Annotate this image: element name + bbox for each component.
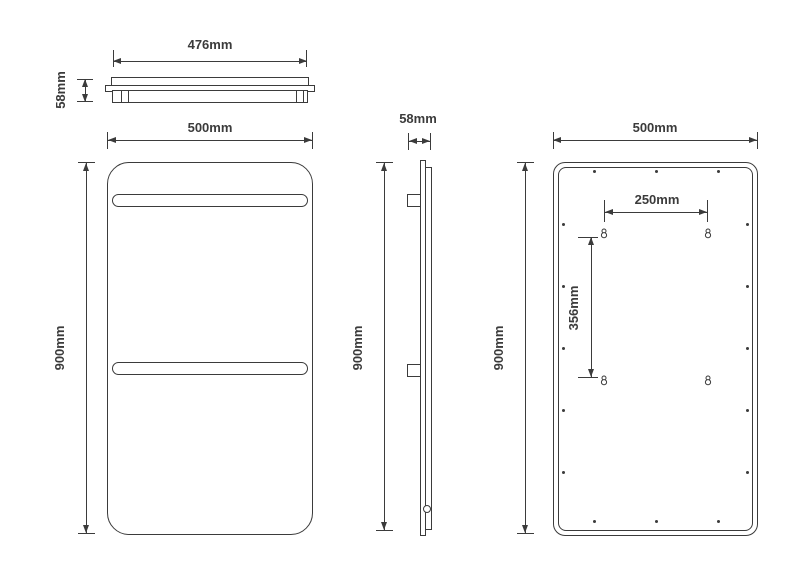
screw-dot [562, 223, 565, 226]
arrow-left-icon [553, 137, 561, 143]
arrow-left-icon [113, 58, 121, 64]
arrow-left-icon [108, 137, 116, 143]
dimension-line [113, 61, 307, 62]
screw-dot [562, 409, 565, 412]
towel-slot [112, 362, 308, 375]
mounting-keyhole [600, 228, 608, 239]
screw-dot [562, 471, 565, 474]
dimension-line [604, 212, 708, 213]
towel-slot [112, 194, 308, 207]
dimension-line [591, 237, 592, 377]
mounting-keyhole [600, 375, 608, 386]
screw-dot [746, 285, 749, 288]
arrow-left-icon [409, 138, 417, 144]
screw-dot [746, 347, 749, 350]
back-view-height-label: 900mm [491, 308, 507, 388]
mounting-hole-horizontal-spacing-label: 250mm [597, 192, 717, 208]
side-view-back-frame [425, 167, 432, 530]
screw-dot [717, 170, 720, 173]
arrow-left-icon [605, 209, 613, 215]
arrow-down-icon [381, 522, 387, 530]
front-panel-outline [107, 162, 313, 535]
arrow-up-icon [381, 163, 387, 171]
top-view-back-frame [112, 90, 308, 103]
side-view-bracket [407, 364, 421, 377]
side-view-depth-label: 58mm [378, 111, 458, 127]
screw-dot [562, 285, 565, 288]
back-panel-inner-outline [558, 167, 753, 531]
arrow-down-icon [522, 525, 528, 533]
top-view-bracket [296, 90, 304, 103]
dimension-line [525, 163, 526, 533]
arrow-up-icon [83, 163, 89, 171]
dimension-line [553, 140, 757, 141]
dimension-line [108, 140, 313, 141]
screw-dot [746, 471, 749, 474]
front-view-height-label: 900mm [52, 308, 68, 388]
screw-dot [562, 347, 565, 350]
arrow-right-icon [304, 137, 312, 143]
side-view-height-label: 900mm [350, 308, 366, 388]
screw-dot [717, 520, 720, 523]
dimension-tick [78, 533, 95, 534]
side-view-bracket [407, 194, 421, 207]
valve-hole [423, 505, 431, 513]
arrow-up-icon [588, 237, 594, 245]
arrow-right-icon [299, 58, 307, 64]
technical-drawing-canvas: 476mm 58mm 500mm 900mm [0, 0, 800, 571]
front-view-width-label: 500mm [150, 120, 270, 136]
side-view-panel [420, 160, 426, 536]
mounting-keyhole [704, 375, 712, 386]
mounting-keyhole [704, 228, 712, 239]
arrow-right-icon [699, 209, 707, 215]
top-view-depth-label: 58mm [53, 50, 69, 130]
arrow-up-icon [522, 163, 528, 171]
screw-dot [746, 223, 749, 226]
arrow-right-icon [749, 137, 757, 143]
top-view-width-label: 476mm [150, 37, 270, 53]
arrow-right-icon [422, 138, 430, 144]
arrow-up-icon [82, 79, 88, 87]
top-view-bracket [121, 90, 129, 103]
screw-dot [593, 520, 596, 523]
dimension-line [86, 163, 87, 533]
dimension-line [384, 163, 385, 530]
dimension-tick [517, 533, 534, 534]
dimension-tick [312, 132, 313, 149]
screw-dot [746, 409, 749, 412]
screw-dot [655, 520, 658, 523]
dimension-tick [430, 133, 431, 150]
mounting-hole-vertical-spacing-label: 356mm [566, 268, 582, 348]
screw-dot [655, 170, 658, 173]
dimension-tick [578, 377, 598, 378]
dimension-tick [376, 530, 393, 531]
screw-dot [593, 170, 596, 173]
arrow-down-icon [588, 369, 594, 377]
back-view-width-label: 500mm [595, 120, 715, 136]
dimension-tick [707, 200, 708, 222]
arrow-down-icon [83, 525, 89, 533]
dimension-tick [757, 132, 758, 149]
arrow-down-icon [82, 94, 88, 102]
